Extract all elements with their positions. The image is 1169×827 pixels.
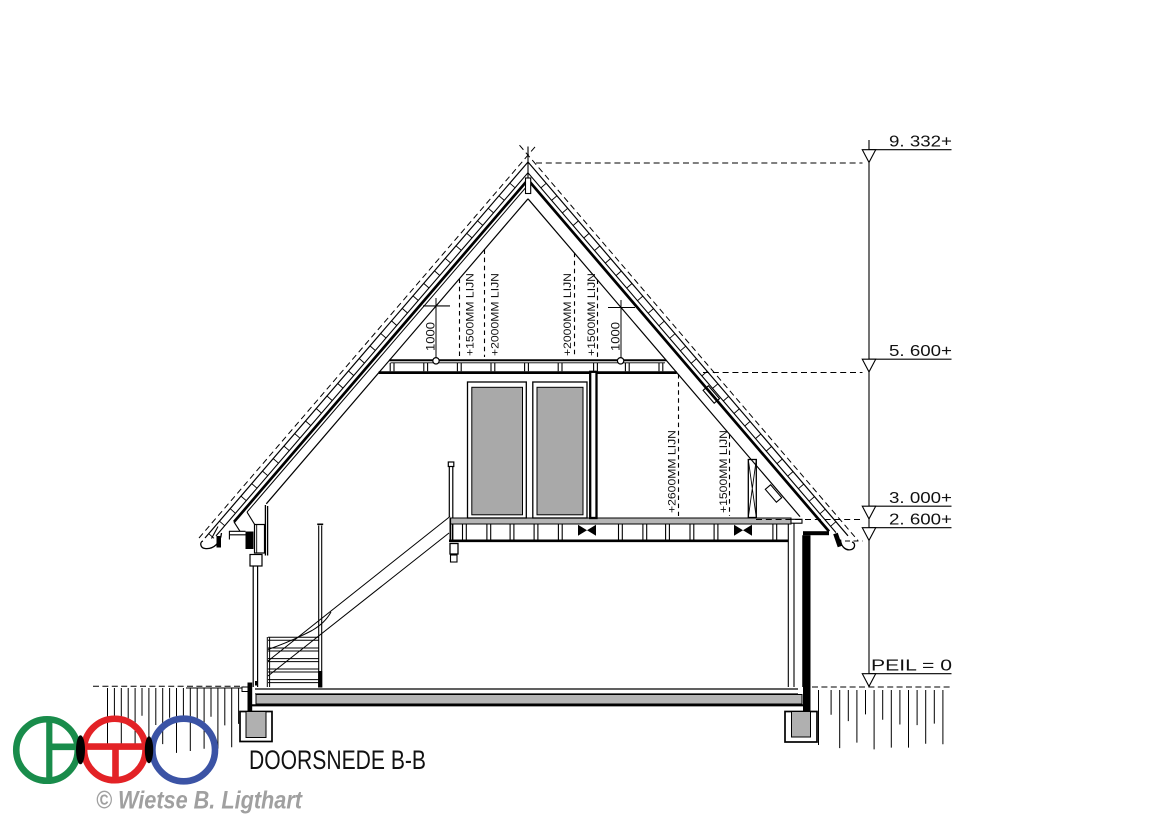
svg-text:5. 600+: 5. 600+ bbox=[889, 343, 952, 360]
svg-text:+2000MM LIJN: +2000MM LIJN bbox=[562, 273, 574, 356]
svg-text:2. 600+: 2. 600+ bbox=[889, 512, 952, 529]
svg-text:+1500MM LIJN: +1500MM LIJN bbox=[718, 430, 730, 513]
svg-text:PEIL = 0: PEIL = 0 bbox=[871, 658, 952, 675]
svg-text:3. 000+: 3. 000+ bbox=[889, 490, 952, 507]
svg-text:+1500MM LIJN: +1500MM LIJN bbox=[586, 273, 598, 356]
svg-text:1000: 1000 bbox=[426, 322, 438, 351]
svg-text:DOORSNEDE B-B: DOORSNEDE B-B bbox=[249, 745, 426, 775]
svg-text:+2600MM LIJN: +2600MM LIJN bbox=[667, 430, 679, 513]
svg-text:+1500MM LIJN: +1500MM LIJN bbox=[465, 273, 477, 356]
svg-text:9. 332+: 9. 332+ bbox=[889, 134, 952, 151]
svg-text:1000: 1000 bbox=[611, 322, 623, 351]
svg-text:© Wietse B. Ligthart: © Wietse B. Ligthart bbox=[96, 787, 303, 815]
svg-text:+2000MM LIJN: +2000MM LIJN bbox=[490, 273, 502, 356]
